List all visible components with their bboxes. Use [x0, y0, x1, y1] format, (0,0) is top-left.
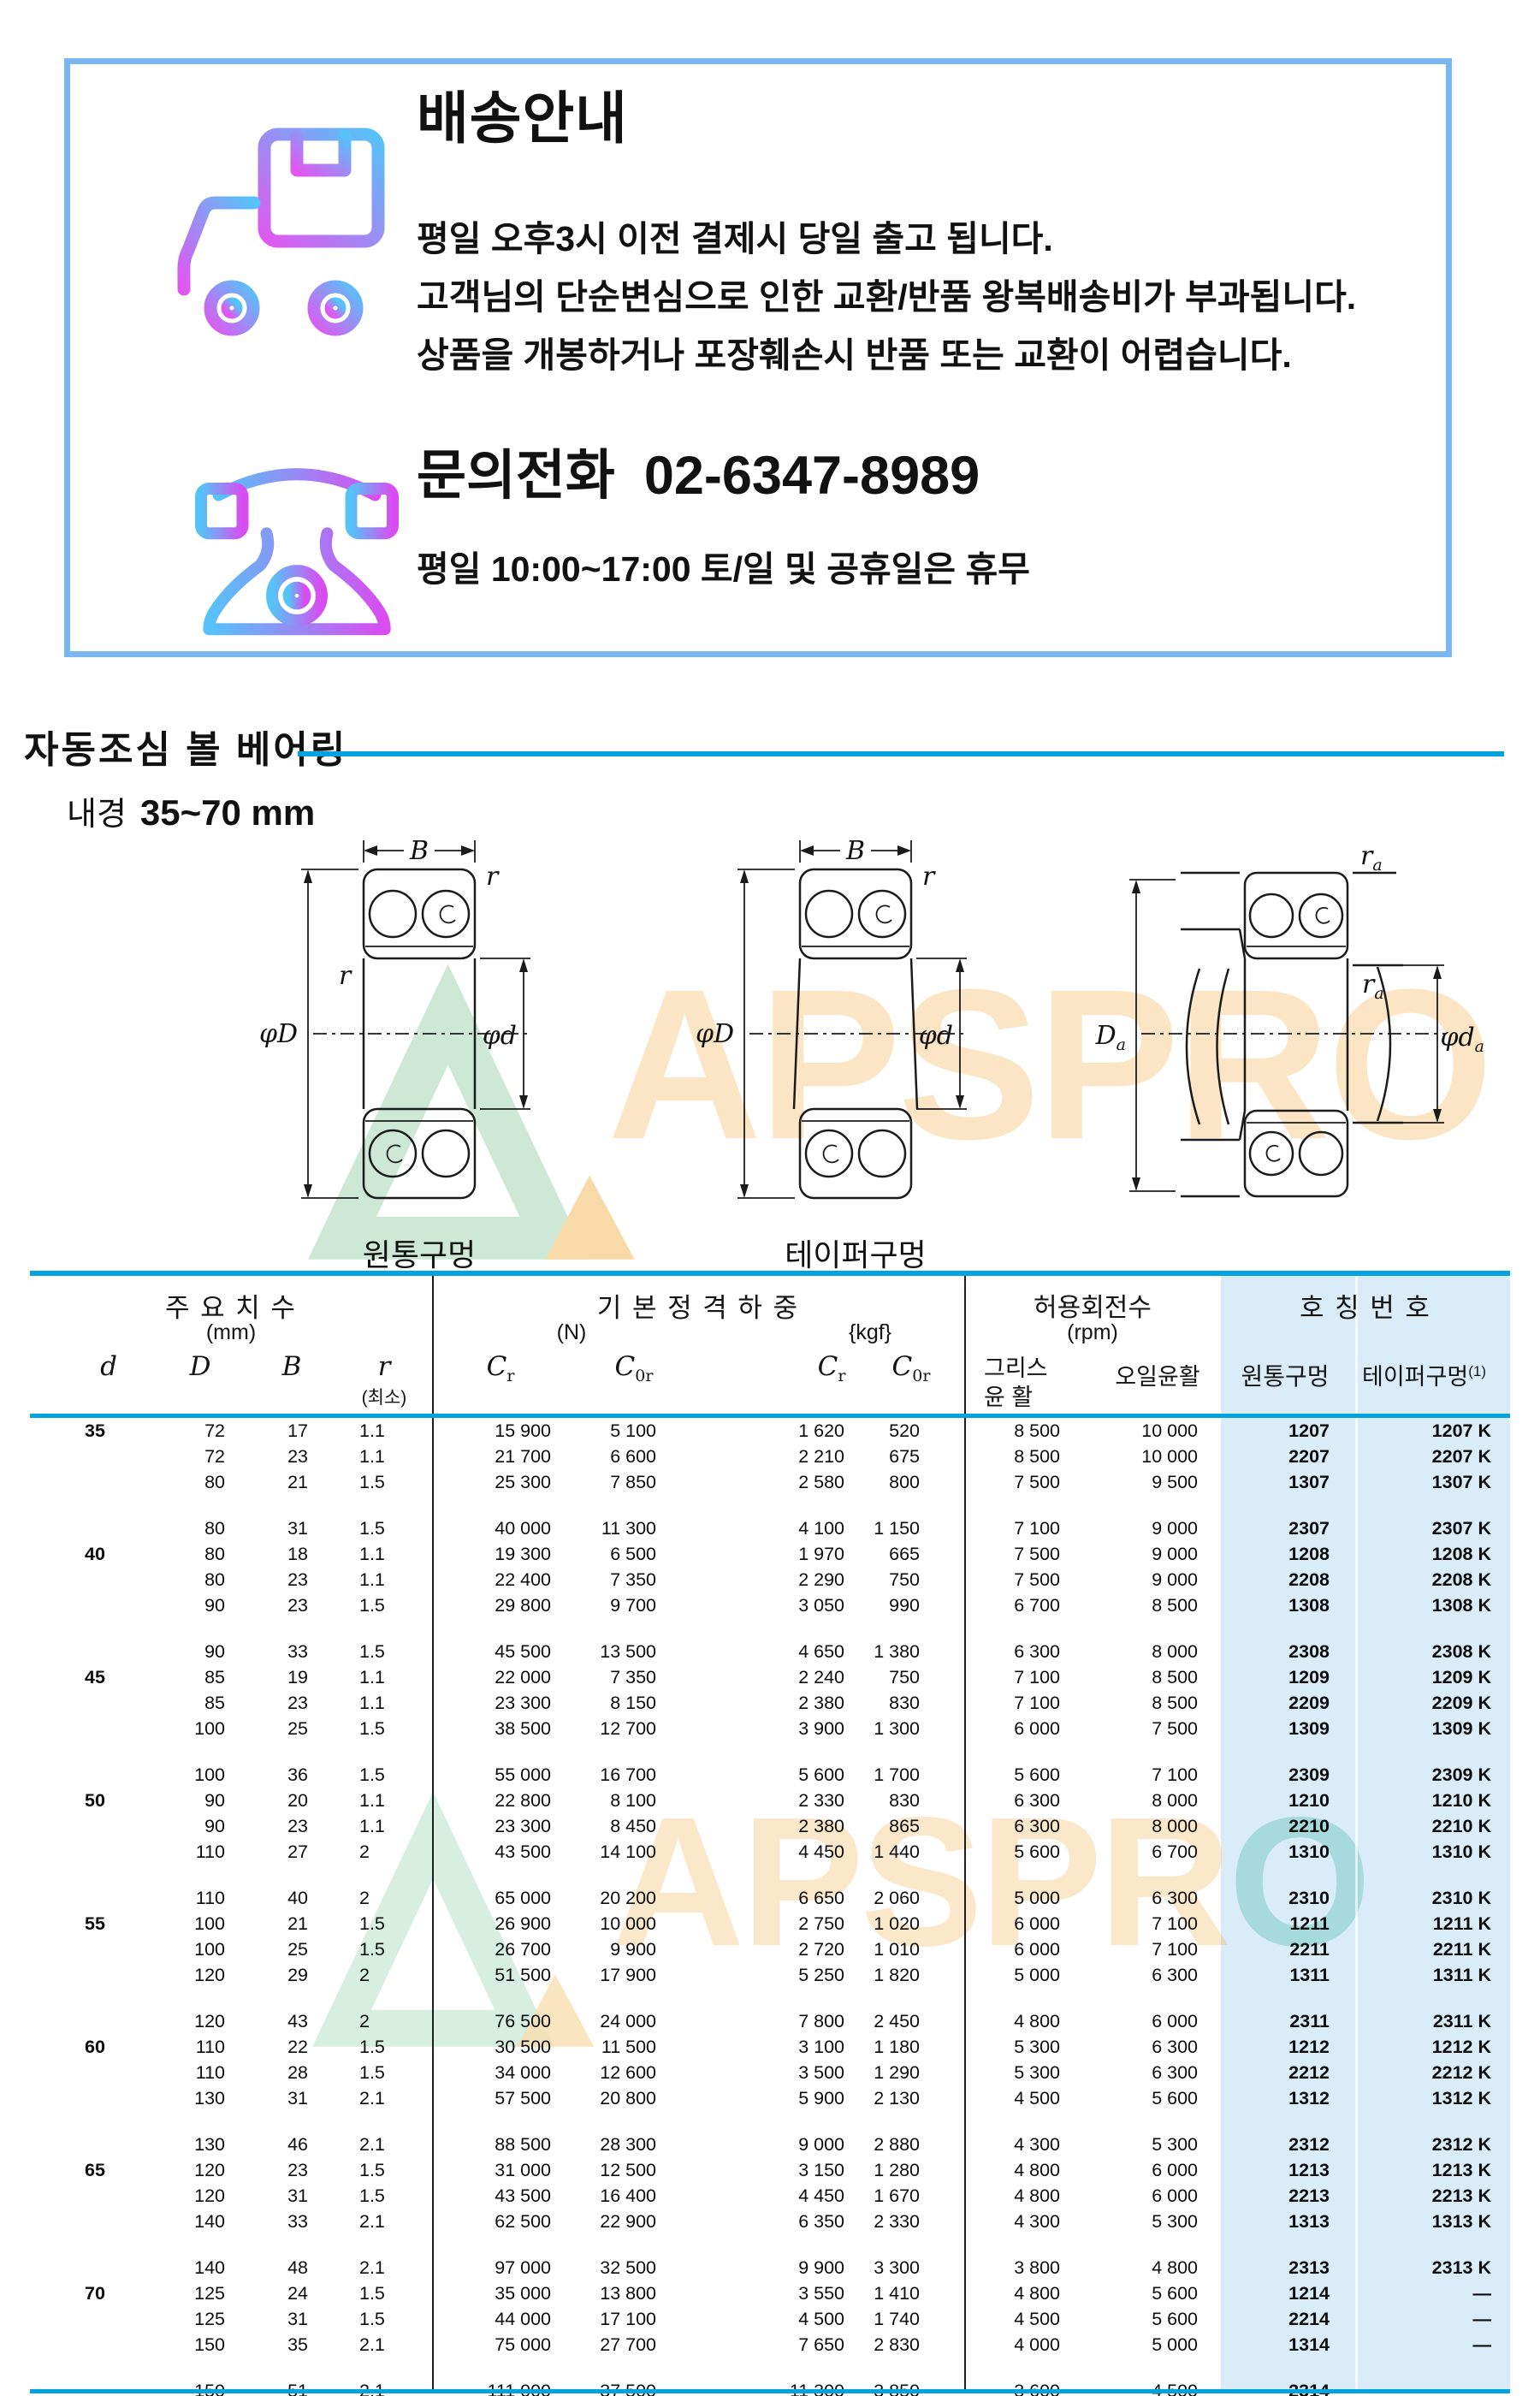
cell-cylindrical-number: 1314 — [1227, 2332, 1330, 2357]
cell-taper-number: 1208 K — [1337, 1541, 1491, 1567]
cell-grease-rpm: 6 700 — [957, 1592, 1060, 1618]
cell-cr-n: 26 900 — [448, 1911, 551, 1936]
cell-oil-rpm: 6 000 — [1095, 2157, 1198, 2183]
cell-D: 140 — [122, 2209, 225, 2234]
cell-cr-kgf: 4 500 — [742, 2306, 844, 2332]
cell-r: 1.5 — [359, 2034, 419, 2060]
section-title: 자동조심 볼 베어링 — [24, 719, 347, 774]
table-row: 150 35 2.1 75 000 27 700 7 650 2 830 4 0… — [30, 2332, 1510, 2357]
cell-c0r-n: 5 100 — [554, 1418, 656, 1444]
cell-grease-rpm: 8 500 — [957, 1444, 1060, 1469]
cell-c0r-kgf: 750 — [834, 1664, 920, 1690]
cell-oil-rpm: 6 000 — [1095, 2183, 1198, 2209]
cell-cylindrical-number: 2210 — [1227, 1813, 1330, 1839]
cell-c0r-kgf: 1 300 — [834, 1716, 920, 1741]
cell-B: 43 — [235, 2008, 308, 2034]
cell-cr-kgf: 4 450 — [742, 2183, 844, 2209]
cell-cr-n: 31 000 — [448, 2157, 551, 2183]
cell-c0r-n: 8 150 — [554, 1690, 656, 1716]
cell-oil-rpm: 8 500 — [1095, 1690, 1198, 1716]
table-row: 50 90 20 1.1 22 800 8 100 2 330 830 6 30… — [30, 1788, 1510, 1813]
cell-r: 1.5 — [359, 2060, 419, 2085]
cell-c0r-n: 20 800 — [554, 2085, 656, 2111]
cell-cr-n: 97 000 — [448, 2255, 551, 2280]
contact-phone-line: 문의전화02-6347-8989 — [417, 432, 980, 510]
cell-cylindrical-number: 1313 — [1227, 2209, 1330, 2234]
cell-r: 2 — [359, 1839, 419, 1865]
cell-c0r-kgf: 2 880 — [834, 2132, 920, 2157]
cell-c0r-n: 7 350 — [554, 1664, 656, 1690]
cell-B: 24 — [235, 2280, 308, 2306]
cell-r: 2.1 — [359, 2332, 419, 2357]
cell-c0r-kgf: 665 — [834, 1541, 920, 1567]
cell-taper-number: — — [1337, 2306, 1491, 2332]
cell-taper-number: 2208 K — [1337, 1567, 1491, 1592]
cell-cr-kgf: 7 650 — [742, 2332, 844, 2357]
cell-r: 1.5 — [359, 2280, 419, 2306]
cell-B: 20 — [235, 1788, 308, 1813]
cell-grease-rpm: 8 500 — [957, 1418, 1060, 1444]
cell-taper-number: 2210 K — [1337, 1813, 1491, 1839]
shipping-line-1: 평일 오후3시 이전 결제시 당일 출고 됩니다. — [417, 210, 1053, 261]
cell-cr-n: 45 500 — [448, 1639, 551, 1664]
cell-cylindrical-number: 1213 — [1227, 2157, 1330, 2183]
cell-grease-rpm: 5 600 — [957, 1762, 1060, 1788]
col-taper: 테이퍼구멍(1) — [1345, 1358, 1503, 1391]
cell-D: 80 — [122, 1567, 225, 1592]
cell-B: 23 — [235, 2157, 308, 2183]
cell-r: 2 — [359, 1962, 419, 1988]
cell-oil-rpm: 7 100 — [1095, 1936, 1198, 1962]
svg-text:φda: φda — [1440, 1023, 1484, 1056]
cell-B: 21 — [235, 1469, 308, 1495]
cell-taper-number: 1309 K — [1337, 1716, 1491, 1741]
col-grease-2: 윤 활 — [984, 1379, 1095, 1412]
cell-B: 33 — [235, 1639, 308, 1664]
cell-cr-kgf: 2 210 — [742, 1444, 844, 1469]
cell-cr-kgf: 9 000 — [742, 2132, 844, 2157]
cell-cr-n: 23 300 — [448, 1813, 551, 1839]
cell-r: 2.1 — [359, 2132, 419, 2157]
cell-D: 80 — [122, 1515, 225, 1541]
cell-grease-rpm: 6 300 — [957, 1639, 1060, 1664]
cell-c0r-n: 11 300 — [554, 1515, 656, 1541]
header-load: 기 본 정 격 하 중 — [432, 1286, 964, 1325]
cell-D: 100 — [122, 1716, 225, 1741]
cell-oil-rpm: 8 500 — [1095, 1664, 1198, 1690]
cell-grease-rpm: 7 500 — [957, 1541, 1060, 1567]
table-row: 35 72 17 1.1 15 900 5 100 1 620 520 8 50… — [30, 1418, 1510, 1444]
cell-B: 27 — [235, 1839, 308, 1865]
cell-oil-rpm: 8 500 — [1095, 1592, 1198, 1618]
cell-B: 35 — [235, 2332, 308, 2357]
cell-c0r-n: 16 400 — [554, 2183, 656, 2209]
telephone-icon — [177, 434, 417, 652]
cell-c0r-kgf: 750 — [834, 1567, 920, 1592]
cell-oil-rpm: 6 300 — [1095, 1885, 1198, 1911]
col-c0r-kgf: C0r — [860, 1351, 962, 1385]
cell-B: 25 — [235, 1936, 308, 1962]
cell-r: 2 — [359, 2008, 419, 2034]
cell-cr-kgf: 5 250 — [742, 1962, 844, 1988]
cell-cr-n: 76 500 — [448, 2008, 551, 2034]
table-top-rule — [30, 1271, 1510, 1276]
cell-taper-number: 1313 K — [1337, 2209, 1491, 2234]
cell-D: 120 — [122, 1962, 225, 1988]
table-row: 90 23 1.1 23 300 8 450 2 380 865 6 300 8… — [30, 1813, 1510, 1839]
cell-B: 29 — [235, 1962, 308, 1988]
cell-cr-kgf: 1 970 — [742, 1541, 844, 1567]
cell-cr-n: 65 000 — [448, 1885, 551, 1911]
cell-c0r-n: 24 000 — [554, 2008, 656, 2034]
cell-cr-n: 25 300 — [448, 1469, 551, 1495]
svg-text:φD: φD — [259, 1019, 298, 1049]
cell-r: 1.5 — [359, 1762, 419, 1788]
cell-cr-kgf: 5 900 — [742, 2085, 844, 2111]
svg-text:B: B — [409, 836, 429, 866]
cell-taper-number: 1210 K — [1337, 1788, 1491, 1813]
table-row: 110 40 2 65 000 20 200 6 650 2 060 5 000… — [30, 1885, 1510, 1911]
cell-cr-kgf: 2 380 — [742, 1813, 844, 1839]
cell-grease-rpm: 6 000 — [957, 1716, 1060, 1741]
cell-cr-n: 29 800 — [448, 1592, 551, 1618]
cell-taper-number: 1312 K — [1337, 2085, 1491, 2111]
table-header-rule — [30, 1414, 1510, 1418]
table-row: 130 31 2.1 57 500 20 800 5 900 2 130 4 5… — [30, 2085, 1510, 2111]
cell-cr-n: 38 500 — [448, 1716, 551, 1741]
cell-taper-number: — — [1337, 2280, 1491, 2306]
cell-B: 31 — [235, 2085, 308, 2111]
cell-grease-rpm: 6 000 — [957, 1936, 1060, 1962]
cell-taper-number: 1307 K — [1337, 1469, 1491, 1495]
col-d: d — [66, 1351, 151, 1382]
cell-oil-rpm: 7 100 — [1095, 1762, 1198, 1788]
business-hours: 평일 10:00~17:00 토/일 및 공휴일은 휴무 — [417, 540, 1030, 591]
table-row: 110 28 1.5 34 000 12 600 3 500 1 290 5 3… — [30, 2060, 1510, 2085]
cell-cylindrical-number: 1214 — [1227, 2280, 1330, 2306]
cell-grease-rpm: 7 500 — [957, 1567, 1060, 1592]
cell-oil-rpm: 6 700 — [1095, 1839, 1198, 1865]
cell-c0r-kgf: 1 290 — [834, 2060, 920, 2085]
cell-c0r-kgf: 2 130 — [834, 2085, 920, 2111]
diagram-taper-bore: B r φD φd — [693, 828, 1018, 1239]
cell-D: 120 — [122, 2157, 225, 2183]
cell-B: 22 — [235, 2034, 308, 2060]
cell-c0r-n: 9 700 — [554, 1592, 656, 1618]
table-row: 60 110 22 1.5 30 500 11 500 3 100 1 180 … — [30, 2034, 1510, 2060]
cell-cr-n: 34 000 — [448, 2060, 551, 2085]
cell-D: 100 — [122, 1911, 225, 1936]
table-row: 110 27 2 43 500 14 100 4 450 1 440 5 600… — [30, 1839, 1510, 1865]
cell-grease-rpm: 6 300 — [957, 1813, 1060, 1839]
table-row: 90 33 1.5 45 500 13 500 4 650 1 380 6 30… — [30, 1639, 1510, 1664]
svg-text:φd: φd — [919, 1021, 953, 1051]
cell-c0r-kgf: 2 450 — [834, 2008, 920, 2034]
table-row: 100 36 1.5 55 000 16 700 5 600 1 700 5 6… — [30, 1762, 1510, 1788]
cell-c0r-kgf: 990 — [834, 1592, 920, 1618]
cell-c0r-kgf: 865 — [834, 1813, 920, 1839]
cell-cr-kgf: 6 650 — [742, 1885, 844, 1911]
cell-oil-rpm: 4 800 — [1095, 2255, 1198, 2280]
cell-D: 80 — [122, 1541, 225, 1567]
cell-r: 1.1 — [359, 1567, 419, 1592]
cell-taper-number: 1310 K — [1337, 1839, 1491, 1865]
table-bottom-rule — [30, 2389, 1510, 2393]
cell-cylindrical-number: 2311 — [1227, 2008, 1330, 2034]
cell-D: 150 — [122, 2332, 225, 2357]
cell-r: 1.5 — [359, 1936, 419, 1962]
cell-cr-kgf: 4 450 — [742, 1839, 844, 1865]
cell-cr-n: 19 300 — [448, 1541, 551, 1567]
col-r-min: (최소) — [333, 1384, 435, 1409]
cell-cr-kgf: 4 650 — [742, 1639, 844, 1664]
cell-grease-rpm: 5 000 — [957, 1962, 1060, 1988]
cell-taper-number: 2313 K — [1337, 2255, 1491, 2280]
cell-cr-kgf: 2 750 — [742, 1911, 844, 1936]
cell-c0r-n: 27 700 — [554, 2332, 656, 2357]
header-speed: 허용회전수 — [964, 1286, 1221, 1324]
svg-text:φD: φD — [696, 1019, 734, 1049]
table-row: 70 125 24 1.5 35 000 13 800 3 550 1 410 … — [30, 2280, 1510, 2306]
cell-c0r-kgf: 1 010 — [834, 1936, 920, 1962]
cell-grease-rpm: 4 800 — [957, 2183, 1060, 2209]
cell-r: 1.5 — [359, 2306, 419, 2332]
cell-D: 140 — [122, 2255, 225, 2280]
cell-cr-n: 88 500 — [448, 2132, 551, 2157]
cell-oil-rpm: 5 600 — [1095, 2085, 1198, 2111]
cell-cylindrical-number: 2211 — [1227, 1936, 1330, 1962]
delivery-truck-icon — [169, 117, 425, 357]
cell-cr-n: 57 500 — [448, 2085, 551, 2111]
cell-cr-n: 22 400 — [448, 1567, 551, 1592]
cell-D: 90 — [122, 1639, 225, 1664]
table-row: 40 80 18 1.1 19 300 6 500 1 970 665 7 50… — [30, 1541, 1510, 1567]
cell-B: 28 — [235, 2060, 308, 2085]
cell-c0r-kgf: 1 180 — [834, 2034, 920, 2060]
cell-c0r-n: 13 500 — [554, 1639, 656, 1664]
cell-taper-number: 1211 K — [1337, 1911, 1491, 1936]
cell-B: 23 — [235, 1444, 308, 1469]
cell-cr-kgf: 5 600 — [742, 1762, 844, 1788]
cell-r: 1.1 — [359, 1813, 419, 1839]
cell-r: 1.1 — [359, 1690, 419, 1716]
cell-cr-kgf: 6 350 — [742, 2209, 844, 2234]
cell-cylindrical-number: 1307 — [1227, 1469, 1330, 1495]
diagram-mounted-bearing: ra ra φDa φda — [1095, 828, 1489, 1239]
cell-grease-rpm: 7 500 — [957, 1469, 1060, 1495]
cell-B: 48 — [235, 2255, 308, 2280]
cell-r: 2.1 — [359, 2255, 419, 2280]
cell-cr-kgf: 3 900 — [742, 1716, 844, 1741]
cell-cr-kgf: 2 580 — [742, 1469, 844, 1495]
cell-cylindrical-number: 2213 — [1227, 2183, 1330, 2209]
cell-D: 110 — [122, 2034, 225, 2060]
cell-D: 130 — [122, 2132, 225, 2157]
cell-cylindrical-number: 1312 — [1227, 2085, 1330, 2111]
cell-grease-rpm: 4 800 — [957, 2280, 1060, 2306]
cell-c0r-n: 17 100 — [554, 2306, 656, 2332]
cell-oil-rpm: 10 000 — [1095, 1444, 1198, 1469]
cell-D: 72 — [122, 1444, 225, 1469]
table-row: 90 23 1.5 29 800 9 700 3 050 990 6 700 8… — [30, 1592, 1510, 1618]
header-designation: 호 칭 번 호 — [1221, 1286, 1510, 1325]
cell-cylindrical-number: 2312 — [1227, 2132, 1330, 2157]
cell-D: 100 — [122, 1936, 225, 1962]
svg-text:r: r — [339, 961, 352, 991]
cell-oil-rpm: 8 000 — [1095, 1788, 1198, 1813]
cell-D: 100 — [122, 1762, 225, 1788]
cell-c0r-n: 17 900 — [554, 1962, 656, 1988]
cell-grease-rpm: 7 100 — [957, 1690, 1060, 1716]
cell-B: 21 — [235, 1911, 308, 1936]
col-c0r-n: C0r — [583, 1351, 685, 1385]
cell-r: 1.1 — [359, 1444, 419, 1469]
cell-c0r-n: 12 500 — [554, 2157, 656, 2183]
diagram-cylindrical-bore: B r r φD φd — [257, 828, 582, 1239]
table-row: 45 85 19 1.1 22 000 7 350 2 240 750 7 10… — [30, 1664, 1510, 1690]
cell-r: 1.1 — [359, 1418, 419, 1444]
col-r: r — [341, 1351, 427, 1382]
cell-D: 85 — [122, 1690, 225, 1716]
cell-cr-kgf: 9 900 — [742, 2255, 844, 2280]
cell-c0r-kgf: 3 300 — [834, 2255, 920, 2280]
cell-cr-n: 62 500 — [448, 2209, 551, 2234]
cell-r: 1.5 — [359, 2157, 419, 2183]
table-body: 35 72 17 1.1 15 900 5 100 1 620 520 8 50… — [30, 1418, 1510, 2396]
cell-c0r-n: 7 350 — [554, 1567, 656, 1592]
cell-c0r-n: 22 900 — [554, 2209, 656, 2234]
col-D: D — [157, 1351, 243, 1382]
cell-oil-rpm: 5 300 — [1095, 2209, 1198, 2234]
cell-D: 120 — [122, 2183, 225, 2209]
cell-cylindrical-number: 2313 — [1227, 2255, 1330, 2280]
table-row: 125 31 1.5 44 000 17 100 4 500 1 740 4 5… — [30, 2306, 1510, 2332]
cell-cr-kgf: 1 620 — [742, 1418, 844, 1444]
header-load-kgf: {kgf} — [819, 1320, 921, 1345]
cell-oil-rpm: 5 600 — [1095, 2280, 1198, 2306]
cell-c0r-n: 28 300 — [554, 2132, 656, 2157]
cell-r: 1.5 — [359, 1469, 419, 1495]
phone-number: 02-6347-8989 — [644, 446, 980, 506]
cell-c0r-kgf: 1 700 — [834, 1762, 920, 1788]
cell-c0r-kgf: 675 — [834, 1444, 920, 1469]
cell-c0r-n: 16 700 — [554, 1762, 656, 1788]
cell-oil-rpm: 6 300 — [1095, 2060, 1198, 2085]
cell-grease-rpm: 4 500 — [957, 2306, 1060, 2332]
cell-cylindrical-number: 1310 — [1227, 1839, 1330, 1865]
cell-cylindrical-number: 2214 — [1227, 2306, 1330, 2332]
section-rule — [298, 751, 1504, 756]
cell-oil-rpm: 6 300 — [1095, 2034, 1198, 2060]
cell-c0r-kgf: 830 — [834, 1690, 920, 1716]
cell-cr-n: 40 000 — [448, 1515, 551, 1541]
cell-B: 23 — [235, 1567, 308, 1592]
cell-cylindrical-number: 1209 — [1227, 1664, 1330, 1690]
cell-B: 33 — [235, 2209, 308, 2234]
cell-c0r-n: 10 000 — [554, 1911, 656, 1936]
cell-c0r-kgf: 1 410 — [834, 2280, 920, 2306]
cell-taper-number: 1209 K — [1337, 1664, 1491, 1690]
table-header: 주 요 치 수 (mm) 기 본 정 격 하 중 (N) {kgf} 허용회전수… — [30, 1276, 1510, 1414]
cell-cylindrical-number: 1308 — [1227, 1592, 1330, 1618]
cell-D: 120 — [122, 2008, 225, 2034]
cell-grease-rpm: 4 800 — [957, 2008, 1060, 2034]
cell-B: 23 — [235, 1813, 308, 1839]
cell-cr-n: 55 000 — [448, 1762, 551, 1788]
cell-D: 125 — [122, 2306, 225, 2332]
table-row: 65 120 23 1.5 31 000 12 500 3 150 1 280 … — [30, 2157, 1510, 2183]
cell-r: 1.5 — [359, 2183, 419, 2209]
cell-taper-number: 2312 K — [1337, 2132, 1491, 2157]
header-dimensions-unit: (mm) — [30, 1320, 432, 1345]
cell-cr-n: 22 000 — [448, 1664, 551, 1690]
shipping-line-2: 고객님의 단순변심으로 인한 교환/반품 왕복배송비가 부과됩니다. — [417, 268, 1356, 319]
product-detail-sheet: 배송안내 평일 오후3시 이전 결제시 당일 출고 됩니다. 고객님의 단순변심… — [0, 0, 1540, 2396]
table-row: 100 25 1.5 38 500 12 700 3 900 1 300 6 0… — [30, 1716, 1510, 1741]
cell-r: 1.5 — [359, 1639, 419, 1664]
bearing-diagrams: B r r φD φd — [0, 821, 1540, 1284]
cell-c0r-kgf: 2 830 — [834, 2332, 920, 2357]
cell-D: 72 — [122, 1418, 225, 1444]
cell-r: 1.5 — [359, 1592, 419, 1618]
cell-c0r-kgf: 1 440 — [834, 1839, 920, 1865]
cell-cylindrical-number: 1311 — [1227, 1962, 1330, 1988]
cell-taper-number: 2211 K — [1337, 1936, 1491, 1962]
cell-c0r-n: 12 600 — [554, 2060, 656, 2085]
cell-c0r-kgf: 1 740 — [834, 2306, 920, 2332]
cell-B: 23 — [235, 1592, 308, 1618]
cell-cr-n: 15 900 — [448, 1418, 551, 1444]
cell-c0r-kgf: 800 — [834, 1469, 920, 1495]
cell-cr-n: 75 000 — [448, 2332, 551, 2357]
cell-B: 40 — [235, 1885, 308, 1911]
cell-cr-kgf: 3 500 — [742, 2060, 844, 2085]
cell-c0r-n: 11 500 — [554, 2034, 656, 2060]
cell-B: 31 — [235, 1515, 308, 1541]
cell-r: 2.1 — [359, 2085, 419, 2111]
cell-cr-n: 44 000 — [448, 2306, 551, 2332]
cell-grease-rpm: 4 300 — [957, 2132, 1060, 2157]
cell-taper-number: 1207 K — [1337, 1418, 1491, 1444]
table-row: 130 46 2.1 88 500 28 300 9 000 2 880 4 3… — [30, 2132, 1510, 2157]
cell-taper-number: 2311 K — [1337, 2008, 1491, 2034]
cell-cr-kgf: 2 290 — [742, 1567, 844, 1592]
svg-text:ra: ra — [1360, 841, 1383, 875]
cell-taper-number: 2309 K — [1337, 1762, 1491, 1788]
cell-c0r-kgf: 520 — [834, 1418, 920, 1444]
table-row: 72 23 1.1 21 700 6 600 2 210 675 8 500 1… — [30, 1444, 1510, 1469]
cell-cr-kgf: 4 100 — [742, 1515, 844, 1541]
cell-B: 18 — [235, 1541, 308, 1567]
table-row: 120 31 1.5 43 500 16 400 4 450 1 670 4 8… — [30, 2183, 1510, 2209]
cell-cylindrical-number: 2207 — [1227, 1444, 1330, 1469]
cell-cylindrical-number: 2209 — [1227, 1690, 1330, 1716]
cell-cylindrical-number: 2308 — [1227, 1639, 1330, 1664]
cell-c0r-n: 6 500 — [554, 1541, 656, 1567]
shipping-info-box: 배송안내 평일 오후3시 이전 결제시 당일 출고 됩니다. 고객님의 단순변심… — [64, 58, 1452, 657]
cell-taper-number: 2307 K — [1337, 1515, 1491, 1541]
cell-cr-kgf: 3 100 — [742, 2034, 844, 2060]
cell-B: 19 — [235, 1664, 308, 1690]
svg-text:r: r — [922, 862, 936, 892]
cell-D: 110 — [122, 1839, 225, 1865]
cell-c0r-kgf: 830 — [834, 1788, 920, 1813]
table-row: 100 25 1.5 26 700 9 900 2 720 1 010 6 00… — [30, 1936, 1510, 1962]
cell-D: 110 — [122, 2060, 225, 2085]
cell-oil-rpm: 7 100 — [1095, 1911, 1198, 1936]
cell-oil-rpm: 7 500 — [1095, 1716, 1198, 1741]
cell-cr-n: 23 300 — [448, 1690, 551, 1716]
